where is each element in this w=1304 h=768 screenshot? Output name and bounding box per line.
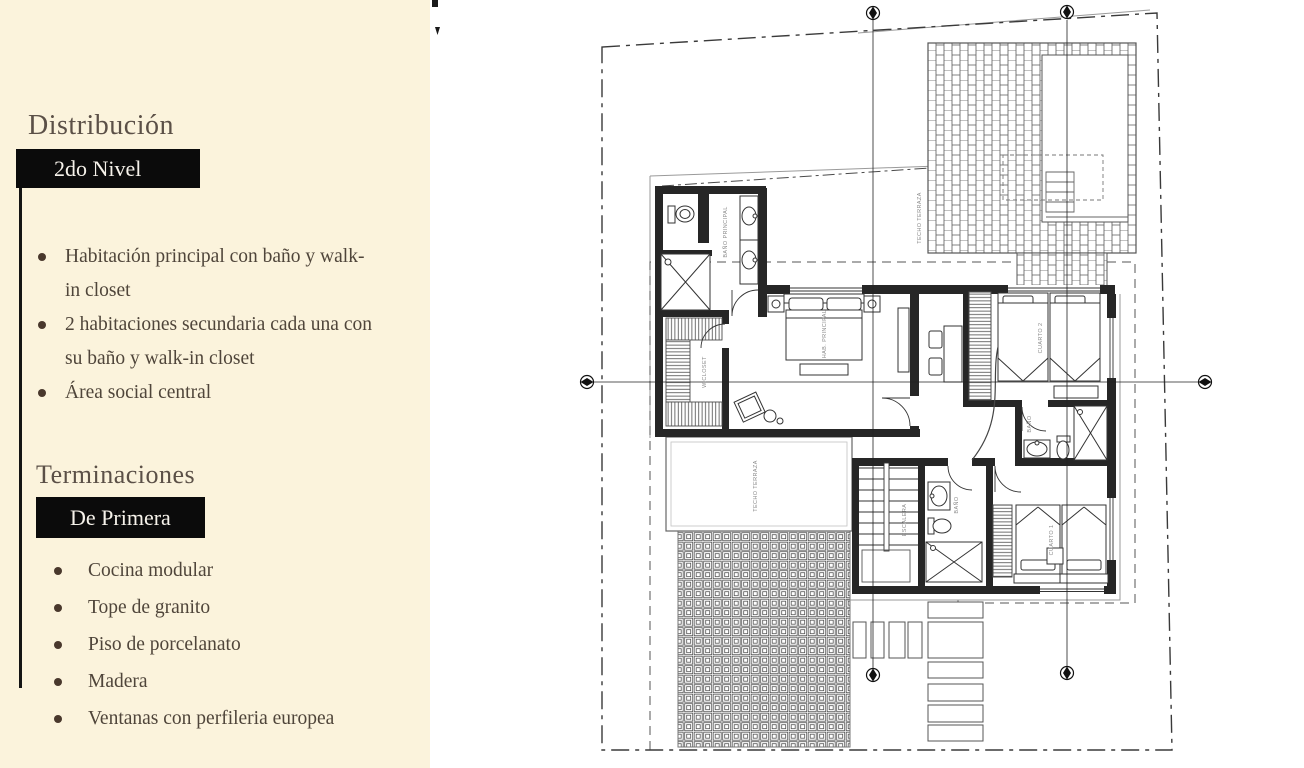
distribution-list: Habitación principal con baño y walk-in … bbox=[36, 240, 376, 410]
pillow bbox=[789, 298, 823, 310]
list-item: Madera bbox=[52, 663, 334, 700]
toilet-icon bbox=[933, 519, 951, 533]
bed-headboard bbox=[1014, 574, 1062, 583]
room-label-escalera: ESCALERA bbox=[902, 504, 908, 537]
info-panel: Distribución 2do Nivel Habitación princi… bbox=[0, 0, 430, 768]
level-badge-label: 2do Nivel bbox=[54, 156, 141, 182]
brochure-page: { "left_panel": { "bg_color": "#fbf3dc",… bbox=[0, 0, 1304, 768]
quality-badge: De Primera bbox=[36, 497, 205, 538]
bed bbox=[1050, 303, 1100, 381]
master-bath bbox=[661, 196, 758, 316]
list-item: Área social central bbox=[36, 376, 375, 410]
room-label-bano-2: BAÑO bbox=[1026, 415, 1033, 433]
bathroom-2 bbox=[1022, 406, 1107, 460]
level-badge: 2do Nivel bbox=[16, 149, 200, 188]
door-arc bbox=[1022, 407, 1046, 431]
room-label-bano-1: BAÑO bbox=[953, 496, 960, 514]
stairs bbox=[859, 463, 918, 582]
room-label-hab-principal: HAB. PRINCIPAL bbox=[822, 310, 828, 359]
bedroom-2 bbox=[969, 292, 1100, 400]
list-item: Piso de porcelanato bbox=[52, 626, 334, 663]
bed-bench bbox=[800, 364, 848, 375]
stair-landing bbox=[862, 550, 910, 582]
bed-bench bbox=[1054, 386, 1098, 398]
list-item: 2 habitaciones secundaria cada una con s… bbox=[36, 308, 375, 376]
roof-terrace-room bbox=[666, 437, 852, 531]
door-arc bbox=[995, 466, 1021, 492]
list-item: Habitación principal con baño y walk-in … bbox=[36, 240, 375, 308]
finishes-list: Cocina modular Tope de granito Piso de p… bbox=[52, 552, 334, 737]
desk bbox=[944, 326, 962, 382]
door-arc bbox=[948, 466, 972, 490]
pillow bbox=[1067, 560, 1101, 570]
floor-plan: TECHO TERRAZA BAÑO PRINCIPAL HAB. PRINCI… bbox=[430, 0, 1304, 768]
room-label-cuarto-1: CUARTO 1 bbox=[1049, 525, 1055, 556]
room-label-closet: W.CLOSET bbox=[702, 356, 708, 388]
door-arc bbox=[882, 398, 910, 426]
walk-in-closet bbox=[666, 318, 725, 426]
section-heading-distribucion: Distribución bbox=[28, 110, 174, 142]
section-heading-terminaciones: Terminaciones bbox=[36, 460, 195, 490]
chair bbox=[929, 358, 942, 375]
closet-rack bbox=[993, 505, 1012, 577]
chair bbox=[929, 331, 942, 348]
decorative-vertical-rule bbox=[19, 188, 22, 688]
door-arc bbox=[732, 290, 758, 316]
brick-roof bbox=[928, 43, 1136, 293]
side-table bbox=[764, 410, 776, 422]
pergola-deck bbox=[678, 531, 850, 747]
toilet-tank bbox=[668, 206, 675, 223]
closet-rack bbox=[969, 292, 991, 400]
room-label-techo-terraza: TECHO TERRAZA bbox=[917, 192, 923, 244]
quality-badge-label: De Primera bbox=[70, 505, 171, 531]
pillow bbox=[827, 298, 861, 310]
room-label-techo-terraza-left: TECHO TERRAZA bbox=[753, 460, 759, 512]
list-item: Ventanas con perfileria europea bbox=[52, 700, 334, 737]
list-item: Cocina modular bbox=[52, 552, 334, 589]
bedroom-1 bbox=[993, 466, 1108, 583]
bathroom-1 bbox=[926, 466, 982, 582]
stair-rail bbox=[884, 463, 889, 551]
room-label-cuarto-2: CUARTO 2 bbox=[1038, 323, 1044, 354]
room-label-bano-principal: BAÑO PRINCIPAL bbox=[722, 206, 729, 257]
list-item: Tope de granito bbox=[52, 589, 334, 626]
wardrobe bbox=[898, 308, 909, 372]
